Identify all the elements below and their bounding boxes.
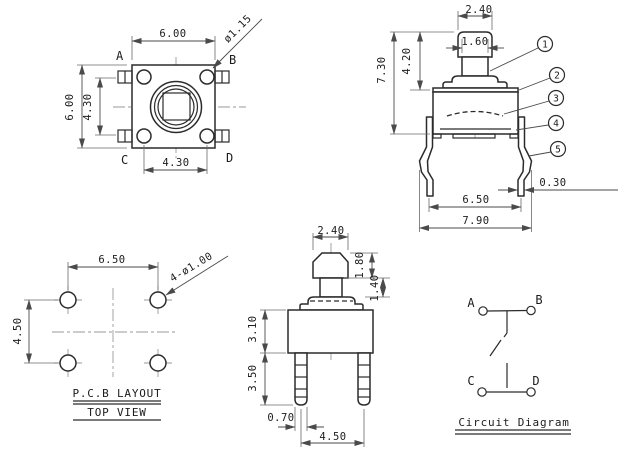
svg-text:6.00: 6.00 — [64, 93, 76, 120]
callout-1: 1 — [542, 40, 548, 51]
pcb-caption-line1: P.C.B LAYOUT — [72, 387, 161, 400]
side-view-body — [433, 92, 518, 134]
circuit-caption: Circuit Diagram — [458, 416, 569, 429]
pin-d-circle — [200, 129, 214, 143]
side-view-left-leg — [420, 117, 434, 196]
front-view: 2.40 1.80 1.40 3.10 3.50 — [247, 225, 390, 447]
circuit-label-c: C — [467, 374, 474, 388]
terminal-label-a: A — [116, 49, 124, 63]
svg-text:0.70: 0.70 — [267, 412, 294, 424]
circuit-label-a: A — [467, 296, 475, 310]
svg-text:2.40: 2.40 — [465, 4, 492, 16]
callout-5: 5 — [555, 145, 561, 156]
circuit-terminal-d — [527, 388, 535, 396]
dim-side-actuator-height: 4.20 — [390, 32, 454, 90]
front-view-right-leg — [358, 353, 370, 405]
dim-front-leg-span: 4.50 — [301, 409, 364, 447]
circuit-label-b: B — [535, 293, 542, 307]
dim-pcb-hole-span-h: 6.50 — [68, 254, 158, 290]
front-view-collar — [300, 297, 363, 310]
dim-front-cap-width: 2.40 — [313, 225, 348, 250]
svg-text:7.30: 7.30 — [376, 56, 388, 83]
circuit-terminal-b — [527, 306, 535, 314]
pcb-layout-view: 6.50 4.50 4-ø1.00 P.C.B LAYOUT TOP VIEW — [12, 250, 228, 420]
dim-side-total-height: 7.30 — [376, 32, 430, 134]
svg-text:4.30: 4.30 — [162, 157, 189, 169]
terminal-label-c: C — [121, 153, 128, 167]
front-view-left-leg — [295, 353, 307, 405]
dim-front-stem-height: 1.40 — [365, 274, 390, 301]
svg-text:6.50: 6.50 — [462, 194, 489, 206]
terminal-label-d: D — [226, 151, 233, 165]
svg-text:1.40: 1.40 — [369, 274, 381, 301]
circuit-switch-arm — [490, 340, 501, 356]
dim-side-cap-width: 2.40 — [458, 4, 493, 30]
svg-text:3.10: 3.10 — [247, 315, 259, 342]
dim-pcb-hole-note: 4-ø1.00 — [166, 250, 228, 295]
dim-top-pin-span-h: 4.30 — [144, 145, 207, 174]
svg-text:4.50: 4.50 — [12, 317, 24, 344]
dim-front-leg-width: 0.70 — [267, 407, 324, 431]
drawing-svg: A B C D 6.00 6.00 4.30 4 — [0, 0, 629, 450]
pcb-caption-line2: TOP VIEW — [87, 406, 146, 419]
svg-text:1.80: 1.80 — [354, 251, 366, 278]
tact-switch-drawing: A B C D 6.00 6.00 4.30 4 — [0, 0, 629, 450]
terminal-label-b: B — [229, 53, 236, 67]
side-view-stem — [462, 57, 488, 76]
dim-top-width: 6.00 — [132, 28, 215, 60]
svg-text:4-ø1.00: 4-ø1.00 — [168, 250, 215, 285]
front-view-body — [288, 310, 373, 353]
side-view-collar — [443, 76, 507, 88]
dim-front-leg-length: 3.50 — [247, 353, 293, 405]
svg-text:6.50: 6.50 — [98, 254, 125, 266]
svg-text:1.60: 1.60 — [461, 36, 488, 48]
pin-b-circle — [200, 70, 214, 84]
svg-text:3.50: 3.50 — [247, 364, 259, 391]
svg-text:ø1.15: ø1.15 — [222, 13, 255, 46]
dim-side-leg-span: 6.50 — [429, 194, 521, 212]
top-view-plunger — [151, 82, 202, 133]
svg-text:0.30: 0.30 — [539, 177, 566, 189]
svg-text:4.20: 4.20 — [401, 47, 413, 74]
callout-4: 4 — [553, 119, 559, 130]
front-view-stem — [320, 278, 342, 297]
top-view: A B C D 6.00 6.00 4.30 4 — [64, 13, 262, 174]
dim-side-leg-thickness: 0.30 — [498, 177, 618, 190]
dim-pcb-hole-span-v: 4.50 — [12, 300, 58, 363]
side-view: 2.40 1.60 4.20 7.30 6.50 — [376, 4, 618, 232]
svg-text:7.90: 7.90 — [462, 215, 489, 227]
circuit-diagram: A B C D Circuit Diagram — [455, 293, 571, 434]
svg-text:4.30: 4.30 — [82, 93, 94, 120]
pin-c-circle — [137, 129, 151, 143]
dim-top-pin-span-v: 4.30 — [82, 78, 116, 135]
svg-text:2.40: 2.40 — [317, 225, 344, 237]
front-view-cap — [313, 253, 348, 278]
circuit-wires — [486, 311, 527, 393]
svg-text:6.00: 6.00 — [159, 28, 186, 40]
circuit-label-d: D — [532, 374, 539, 388]
circuit-terminal-a — [479, 307, 487, 315]
dim-pin-diameter-leader: ø1.15 — [213, 13, 262, 68]
dim-front-cap-height: 1.80 — [344, 251, 390, 278]
svg-text:4.50: 4.50 — [319, 431, 346, 443]
pin-a-circle — [137, 70, 151, 84]
dim-front-body-height: 3.10 — [247, 310, 286, 353]
callout-2: 2 — [554, 71, 560, 82]
callout-3: 3 — [553, 94, 559, 105]
circuit-terminal-c — [478, 388, 486, 396]
